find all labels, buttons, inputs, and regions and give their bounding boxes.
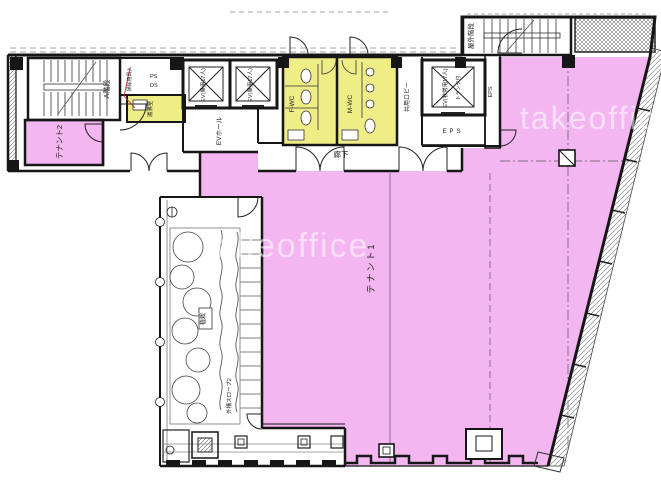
floor-plan: テナント1 テナント2 A階段 屋外階段 EVホール EV(乗用17人) EV(… bbox=[0, 0, 661, 486]
label-ev-emergency: EV(非常用17人) bbox=[441, 68, 449, 107]
label-ps: PS bbox=[150, 74, 158, 80]
label-cleaning-closet: 掃除用具入 bbox=[126, 66, 133, 91]
label-kitchenette: 湯沸室 bbox=[146, 100, 154, 117]
label-shared-lobby: 共用ロビー bbox=[403, 82, 411, 112]
label-tenant2: テナント2 bbox=[55, 125, 64, 159]
watermark-right: takeoffice bbox=[520, 100, 661, 136]
label-ev-passenger-2: EV(乗用17人) bbox=[247, 68, 254, 102]
label-ds: DS bbox=[150, 83, 158, 89]
roof-grating bbox=[575, 18, 655, 52]
stair-a-treads bbox=[44, 60, 108, 116]
label-eps-shaft: EPS bbox=[488, 86, 494, 97]
label-wc-male: M-WC bbox=[347, 94, 354, 113]
label-ev-passenger-1: EV(乗用17人) bbox=[200, 68, 207, 102]
label-exterior-slope: 外構スロープ2 bbox=[225, 378, 233, 414]
outdoor-stair-treads bbox=[484, 19, 560, 53]
label-outdoor-stair: 屋外階段 bbox=[466, 23, 475, 50]
porch bbox=[163, 430, 344, 467]
label-planting: 植栽 bbox=[199, 313, 207, 325]
label-stair-a: A階段 bbox=[102, 80, 111, 99]
tenant2-area bbox=[25, 120, 103, 165]
label-eps-room: EPS bbox=[442, 129, 463, 135]
label-ev-emergency-note: トランク付 bbox=[455, 75, 462, 100]
label-wc-female: F-WC bbox=[289, 95, 296, 112]
floor-plan-canvas: テナント1 テナント2 A階段 屋外階段 EVホール EV(乗用17人) EV(… bbox=[0, 0, 661, 486]
label-ev-hall: EVホール bbox=[215, 116, 223, 145]
watermark-center: takeoffice bbox=[205, 227, 370, 265]
label-corridor: 廊下 bbox=[334, 149, 349, 159]
